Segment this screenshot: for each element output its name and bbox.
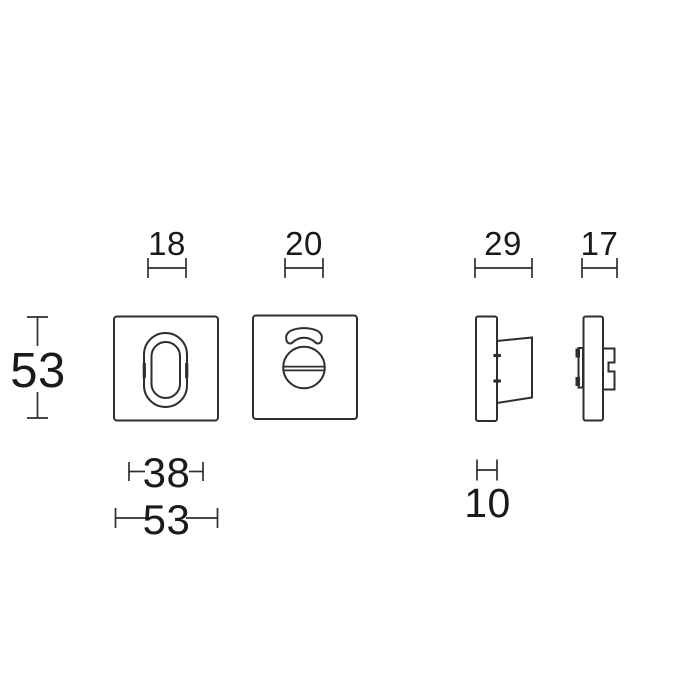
dim-rosette-width: 53 (116, 496, 218, 543)
front-view-keyhole-rosette (114, 317, 218, 421)
mechanism-housing-profile (603, 349, 615, 390)
dim-label-clip-side-depth: 17 (581, 225, 619, 262)
dim-label-rosette-width: 53 (143, 496, 191, 543)
dim-inner-width: 38 (129, 449, 203, 496)
keyhole-inner-hole (152, 342, 181, 398)
side-view-clip (577, 317, 615, 421)
dim-knob-side-depth: 29 (475, 225, 532, 278)
dim-label-turn-knob-width: 20 (285, 225, 323, 262)
side-plate (476, 317, 497, 422)
turn-indicator-window (286, 328, 322, 343)
clip-side-plate (584, 317, 604, 421)
side-view-turn-knob (476, 317, 532, 422)
dim-label-base-depth: 10 (464, 480, 511, 526)
dim-label-keyhole-width: 18 (148, 225, 186, 262)
front-view-turn-rosette (253, 316, 357, 420)
dim-clip-side-depth: 17 (581, 225, 619, 278)
turn-knob-profile (497, 338, 532, 404)
technical-drawing-canvas: 18 20 29 17 53 (0, 0, 700, 700)
dim-turn-knob-width: 20 (285, 225, 323, 278)
turn-knob-circle (283, 347, 325, 389)
dim-base-depth: 10 (464, 460, 511, 527)
rosette-dimension-drawing: 18 20 29 17 53 (0, 0, 700, 700)
dim-label-knob-side-depth: 29 (484, 225, 522, 262)
dim-rosette-height: 53 (10, 317, 66, 418)
dim-label-inner-width: 38 (143, 449, 191, 496)
dim-label-rosette-height: 53 (10, 344, 66, 398)
dim-keyhole-width: 18 (148, 225, 186, 278)
